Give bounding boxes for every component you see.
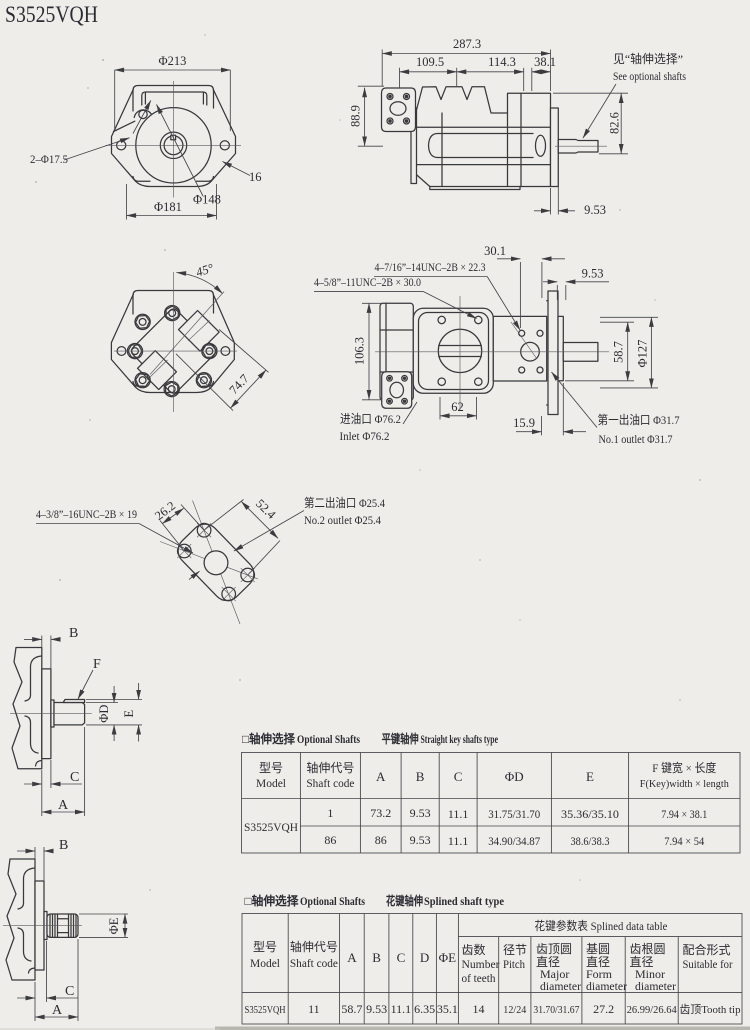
svg-text:型号: 型号 — [253, 940, 277, 954]
svg-text:31.70/31.67: 31.70/31.67 — [533, 1004, 579, 1016]
svg-text:7.94 × 38.1: 7.94 × 38.1 — [661, 807, 707, 821]
svg-text:diameter: diameter — [635, 979, 676, 993]
svg-text:D: D — [420, 950, 429, 965]
svg-text:A: A — [52, 1003, 63, 1018]
svg-text:58.7: 58.7 — [341, 1002, 362, 1016]
svg-text:4–5/8”–11UNC–2B × 30.0: 4–5/8”–11UNC–2B × 30.0 — [314, 275, 421, 289]
svg-text:进油口 Φ76.2: 进油口 Φ76.2 — [340, 412, 401, 426]
svg-text:9.53: 9.53 — [410, 833, 431, 847]
svg-text:见“轴伸选择”: 见“轴伸选择” — [613, 51, 683, 66]
svg-text:E: E — [122, 710, 136, 718]
svg-text:73.2: 73.2 — [370, 806, 391, 820]
svg-text:C: C — [397, 950, 406, 965]
svg-text:Φ148: Φ148 — [193, 193, 221, 207]
svg-text:9.53: 9.53 — [410, 806, 431, 820]
svg-text:38.1: 38.1 — [534, 55, 556, 69]
svg-text:14: 14 — [473, 1002, 485, 1016]
svg-text:of teeth: of teeth — [462, 971, 496, 985]
svg-text:9.53: 9.53 — [584, 203, 606, 217]
svg-text:58.7: 58.7 — [612, 341, 626, 363]
svg-text:62: 62 — [451, 400, 464, 414]
svg-text:ΦE: ΦE — [439, 950, 457, 965]
svg-text:4–7/16”–14UNC–2B × 22.3: 4–7/16”–14UNC–2B × 22.3 — [375, 260, 486, 274]
svg-text:86: 86 — [324, 833, 336, 847]
svg-text:82.6: 82.6 — [608, 112, 622, 134]
svg-text:S3525VQH: S3525VQH — [5, 2, 98, 27]
svg-text:B: B — [372, 950, 381, 965]
svg-text:35.36/35.10: 35.36/35.10 — [561, 807, 619, 821]
svg-text:齿根圆: 齿根圆 — [630, 942, 666, 956]
svg-text:7.94 × 54: 7.94 × 54 — [664, 834, 704, 848]
svg-text:11: 11 — [308, 1002, 320, 1016]
svg-text:径节: 径节 — [503, 943, 527, 957]
svg-text:□轴伸选择: □轴伸选择 — [242, 731, 296, 746]
svg-text:12/24: 12/24 — [503, 1004, 526, 1016]
svg-text:齿数: 齿数 — [462, 942, 486, 957]
svg-text:Pitch: Pitch — [503, 957, 525, 971]
svg-text:109.5: 109.5 — [416, 55, 444, 69]
svg-text:Model: Model — [256, 776, 287, 790]
svg-text:Straight key shafts type: Straight key shafts type — [421, 732, 499, 746]
svg-text:C: C — [70, 770, 79, 785]
svg-text:Φ127: Φ127 — [636, 340, 650, 368]
svg-text:B: B — [59, 838, 68, 853]
svg-text:Model: Model — [250, 956, 281, 970]
svg-text:Shaft code: Shaft code — [290, 956, 338, 970]
svg-text:A: A — [376, 769, 386, 784]
svg-text:B: B — [416, 769, 425, 784]
svg-text:6.35: 6.35 — [414, 1002, 435, 1016]
svg-text:No.1 outlet Φ31.7: No.1 outlet Φ31.7 — [599, 432, 673, 446]
svg-text:B: B — [69, 626, 78, 641]
svg-text:C: C — [454, 769, 463, 784]
svg-text:基圆: 基圆 — [586, 942, 610, 956]
svg-text:26.99/26.64: 26.99/26.64 — [627, 1004, 677, 1016]
svg-text:See optional shafts: See optional shafts — [613, 69, 686, 83]
svg-text:Number: Number — [462, 957, 500, 971]
svg-text:27.2: 27.2 — [593, 1002, 614, 1016]
svg-text:C: C — [65, 984, 74, 999]
svg-text:ΦD: ΦD — [97, 705, 111, 723]
svg-text:2–Φ17.5: 2–Φ17.5 — [30, 152, 68, 166]
svg-text:轴伸代号: 轴伸代号 — [290, 939, 338, 954]
svg-text:第一出油口 Φ31.7: 第一出油口 Φ31.7 — [598, 413, 680, 427]
svg-text:11.1: 11.1 — [448, 807, 469, 821]
svg-text:平键轴伸: 平键轴伸 — [382, 731, 419, 746]
svg-text:轴伸代号: 轴伸代号 — [306, 760, 354, 775]
svg-text:Suitable for: Suitable for — [683, 957, 733, 971]
svg-text:35.1: 35.1 — [437, 1002, 458, 1016]
svg-text:S3525VQH: S3525VQH — [244, 820, 298, 834]
svg-text:F 键宽 × 长度: F 键宽 × 长度 — [652, 760, 716, 775]
svg-text:16: 16 — [249, 170, 262, 184]
svg-text:114.3: 114.3 — [488, 55, 516, 69]
svg-text:Φ213: Φ213 — [159, 54, 187, 68]
svg-text:30.1: 30.1 — [484, 244, 506, 258]
svg-text:ΦD: ΦD — [505, 769, 524, 784]
svg-text:15.9: 15.9 — [513, 416, 535, 430]
svg-text:A: A — [58, 798, 69, 813]
svg-text:86: 86 — [375, 833, 387, 847]
svg-text:diameter: diameter — [540, 979, 581, 993]
svg-text:齿顶圆: 齿顶圆 — [536, 942, 572, 956]
svg-text:F(Key)width × length: F(Key)width × length — [640, 778, 729, 790]
svg-text:11.1: 11.1 — [391, 1002, 412, 1016]
svg-text:E: E — [586, 769, 594, 784]
svg-text:31.75/31.70: 31.75/31.70 — [488, 807, 540, 821]
svg-text:Inlet Φ76.2: Inlet Φ76.2 — [340, 429, 390, 443]
svg-text:4–3/8”–16UNC–2B × 19: 4–3/8”–16UNC–2B × 19 — [36, 507, 137, 521]
svg-text:□轴伸选择: □轴伸选择 — [245, 893, 300, 908]
svg-text:S3525VQH: S3525VQH — [245, 1004, 286, 1016]
svg-text:106.3: 106.3 — [353, 337, 367, 365]
svg-text:No.2 outlet Φ25.4: No.2 outlet Φ25.4 — [304, 513, 381, 527]
svg-text:Shaft code: Shaft code — [306, 776, 354, 790]
svg-text:ΦE: ΦE — [107, 917, 121, 934]
svg-text:型号: 型号 — [259, 761, 283, 775]
svg-text:88.9: 88.9 — [349, 105, 363, 127]
svg-text:Φ181: Φ181 — [154, 200, 182, 214]
svg-text:Optional Shafts: Optional Shafts — [297, 732, 360, 746]
svg-text:9.53: 9.53 — [366, 1002, 387, 1016]
svg-text:第二出油口 Φ25.4: 第二出油口 Φ25.4 — [304, 496, 385, 510]
svg-text:F: F — [93, 657, 101, 672]
svg-text:花键轴伸: 花键轴伸 — [386, 893, 423, 908]
svg-text:配合形式: 配合形式 — [683, 942, 731, 957]
svg-text:1: 1 — [327, 806, 333, 820]
svg-text:9.53: 9.53 — [582, 267, 604, 281]
svg-text:diameter: diameter — [586, 979, 627, 993]
svg-text:Splined shaft type: Splined shaft type — [424, 894, 505, 908]
svg-text:287.3: 287.3 — [453, 37, 481, 51]
svg-text:Optional Shafts: Optional Shafts — [300, 894, 365, 908]
svg-text:34.90/34.87: 34.90/34.87 — [488, 834, 540, 848]
svg-text:花键参数表 Splined data table: 花键参数表 Splined data table — [534, 918, 667, 933]
svg-text:38.6/38.3: 38.6/38.3 — [571, 834, 610, 848]
svg-text:11.1: 11.1 — [448, 834, 469, 848]
svg-text:齿顶Tooth tip: 齿顶Tooth tip — [680, 1003, 741, 1016]
svg-text:A: A — [347, 950, 357, 965]
